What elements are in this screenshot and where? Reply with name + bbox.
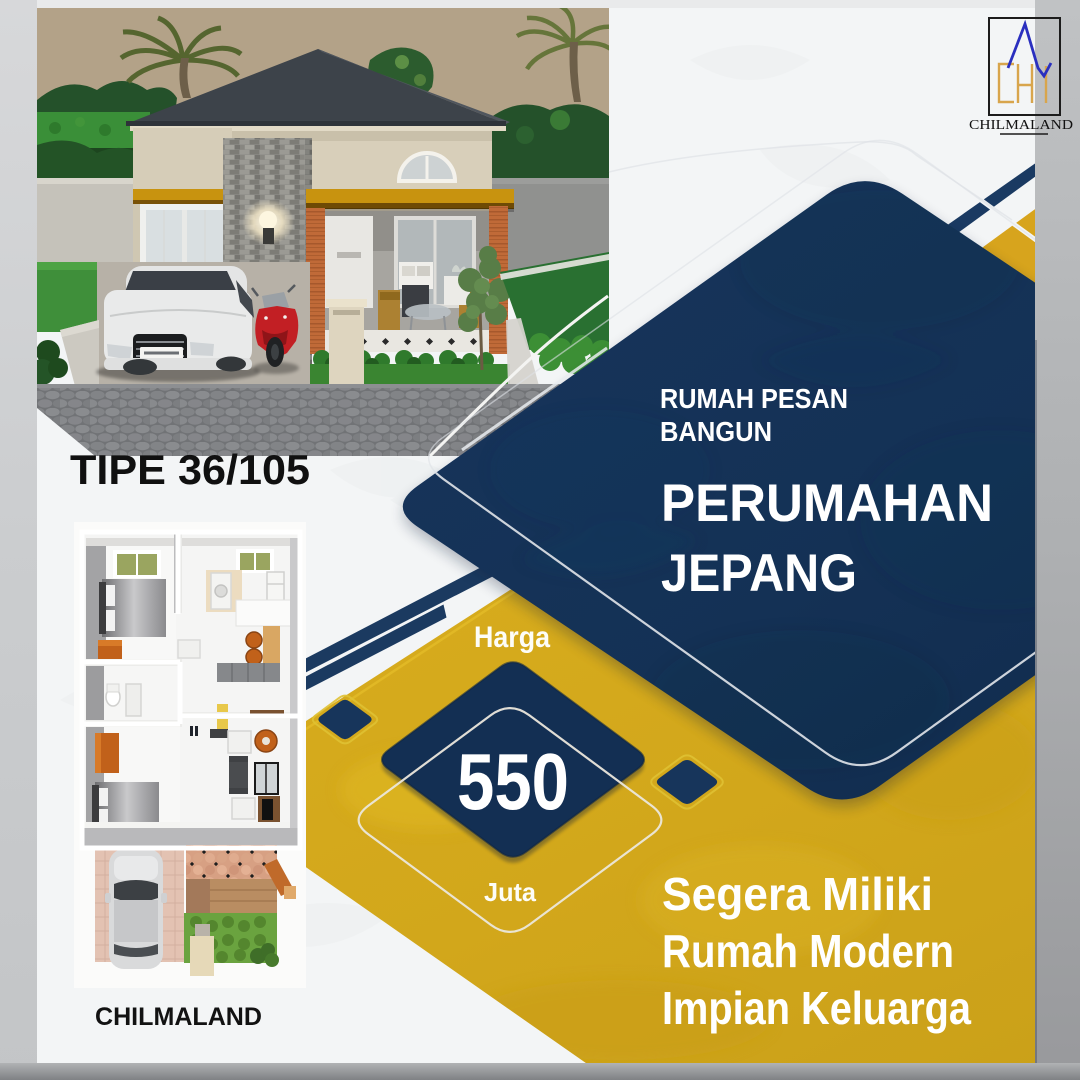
- svg-text:JEPANG: JEPANG: [661, 544, 857, 603]
- svg-text:BANGUN: BANGUN: [660, 416, 772, 447]
- svg-text:PERUMAHAN: PERUMAHAN: [661, 474, 993, 533]
- svg-text:Impian Keluarga: Impian Keluarga: [662, 982, 971, 1034]
- svg-text:CHILMALAND: CHILMALAND: [95, 1003, 262, 1031]
- svg-text:Segera Miliki: Segera Miliki: [662, 868, 933, 920]
- svg-text:TIPE 36/105: TIPE 36/105: [70, 446, 310, 493]
- svg-text:550: 550: [457, 737, 569, 826]
- svg-text:Harga: Harga: [474, 621, 550, 654]
- svg-text:Juta: Juta: [484, 877, 537, 907]
- svg-text:RUMAH PESAN: RUMAH PESAN: [660, 383, 848, 414]
- svg-text:Rumah Modern: Rumah Modern: [662, 925, 954, 977]
- svg-text:CHILMALAND: CHILMALAND: [969, 118, 1073, 133]
